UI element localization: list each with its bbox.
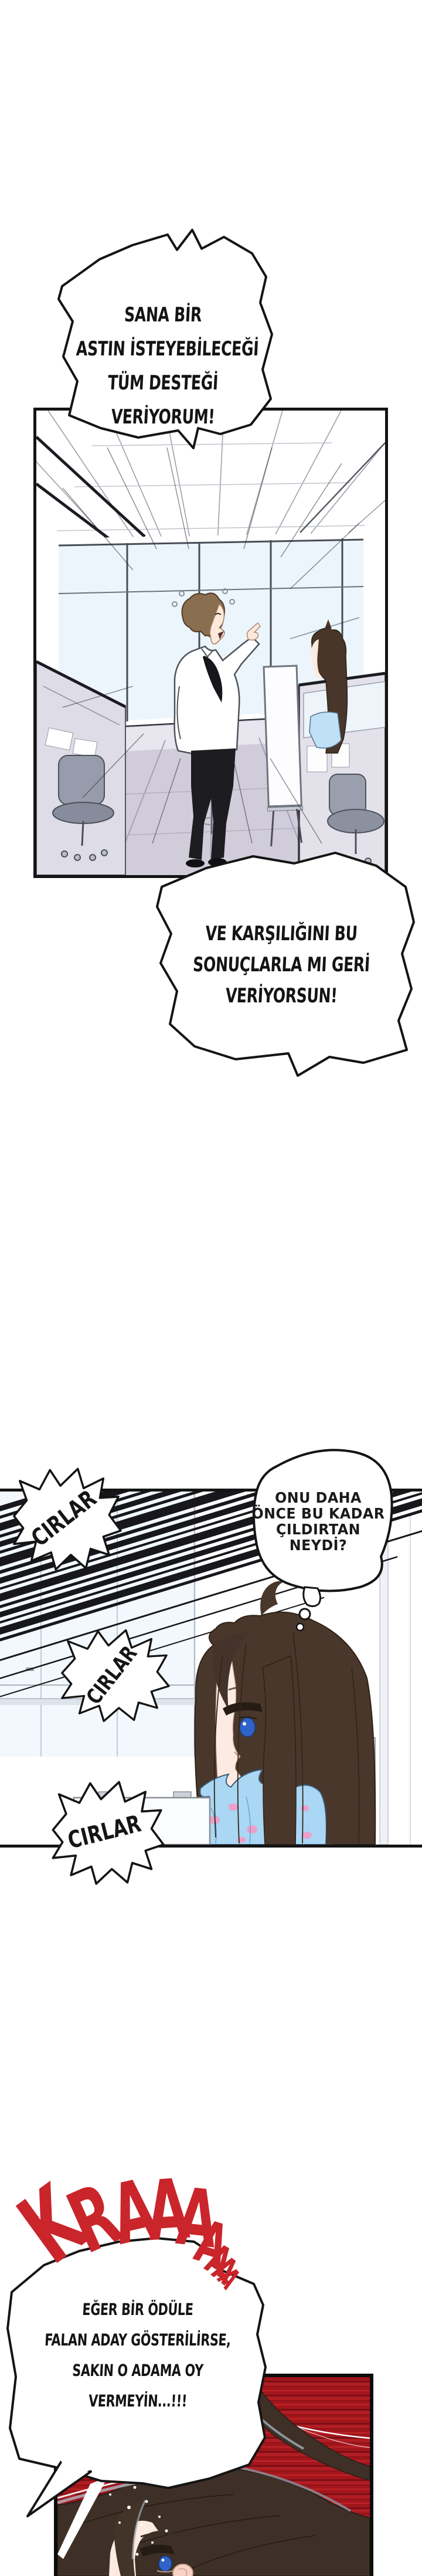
bubble1-line1: SANA BİR — [75, 298, 250, 332]
girl-eye-bottom — [159, 2556, 172, 2571]
sfx-cirlar-3-text: CIRLAR — [45, 1777, 165, 1887]
bubble3-line1: EĞER BİR ÖDÜLE — [37, 2294, 238, 2325]
bubble2-line3: VERİYORSUN! — [176, 981, 386, 1012]
thought-line1: ONU DAHA — [243, 1490, 394, 1506]
thought-bubble-text: ONU DAHA ÖNCE BU KADAR ÇILDIRTAN NEYDİ? — [239, 1490, 397, 1553]
bubble3-line4: VERMEYİN...!!! — [37, 2386, 238, 2416]
bubble2-line1: VE KARŞILIĞINI BU — [176, 918, 386, 950]
speech-bubble-1: SANA BİR ASTIN İSTEYEBİLECEĞİ TÜM DESTEĞ… — [46, 222, 280, 468]
thought-dot-1 — [300, 1609, 310, 1619]
bubble3-line3: SAKIN O ADAMA OY — [37, 2355, 238, 2386]
thought-stem — [304, 1587, 321, 1606]
sfx-cirlar-2: CIRLAR — [54, 1626, 170, 1724]
thought-line2: ÖNCE BU KADAR — [243, 1506, 394, 1521]
thought-line4: NEYDİ? — [243, 1537, 394, 1553]
girl-eye — [240, 1718, 255, 1737]
sfx-cirlar-2-text: CIRLAR — [54, 1626, 170, 1724]
sfx-cirlar-1-text: CIRLAR — [6, 1464, 122, 1573]
ear — [173, 2564, 193, 2576]
thought-bubble: ONU DAHA ÖNCE BU KADAR ÇILDIRTAN NEYDİ? — [239, 1438, 397, 1638]
bubble3-line2: FALAN ADAY GÖSTERİLİRSE, — [37, 2325, 238, 2355]
speech-bubble-2: VE KARŞILIĞINI BU SONUÇLARLA MI GERİ VER… — [141, 845, 422, 1085]
sfx-cirlar-3: CIRLAR — [45, 1777, 165, 1887]
bubble2-line2: SONUÇLARLA MI GERİ — [176, 950, 386, 981]
bubble1-line4: VERİYORUM! — [75, 400, 250, 434]
speech-bubble-2-text: VE KARŞILIĞINI BU SONUÇLARLA MI GERİ VER… — [141, 918, 422, 1012]
bubble1-line3: TÜM DESTEĞİ — [75, 366, 250, 400]
thought-dot-2 — [297, 1623, 304, 1631]
bubble1-line2: ASTIN İSTEYEBİLECEĞİ — [75, 332, 250, 366]
sfx-cirlar-1: CIRLAR — [6, 1464, 122, 1573]
speech-bubble-1-text: SANA BİR ASTIN İSTEYEBİLECEĞİ TÜM DESTEĞ… — [46, 298, 280, 434]
speech-bubble-3: EĞER BİR ÖDÜLE FALAN ADAY GÖSTERİLİRSE, … — [3, 2229, 273, 2522]
webtoon-page: SANA BİR ASTIN İSTEYEBİLECEĞİ TÜM DESTEĞ… — [0, 0, 422, 2576]
panel-office — [33, 408, 388, 878]
thought-line3: ÇILDIRTAN — [243, 1521, 394, 1537]
office-scene-art — [36, 411, 385, 875]
speech-bubble-3-text: EĞER BİR ÖDÜLE FALAN ADAY GÖSTERİLİRSE, … — [3, 2294, 273, 2416]
